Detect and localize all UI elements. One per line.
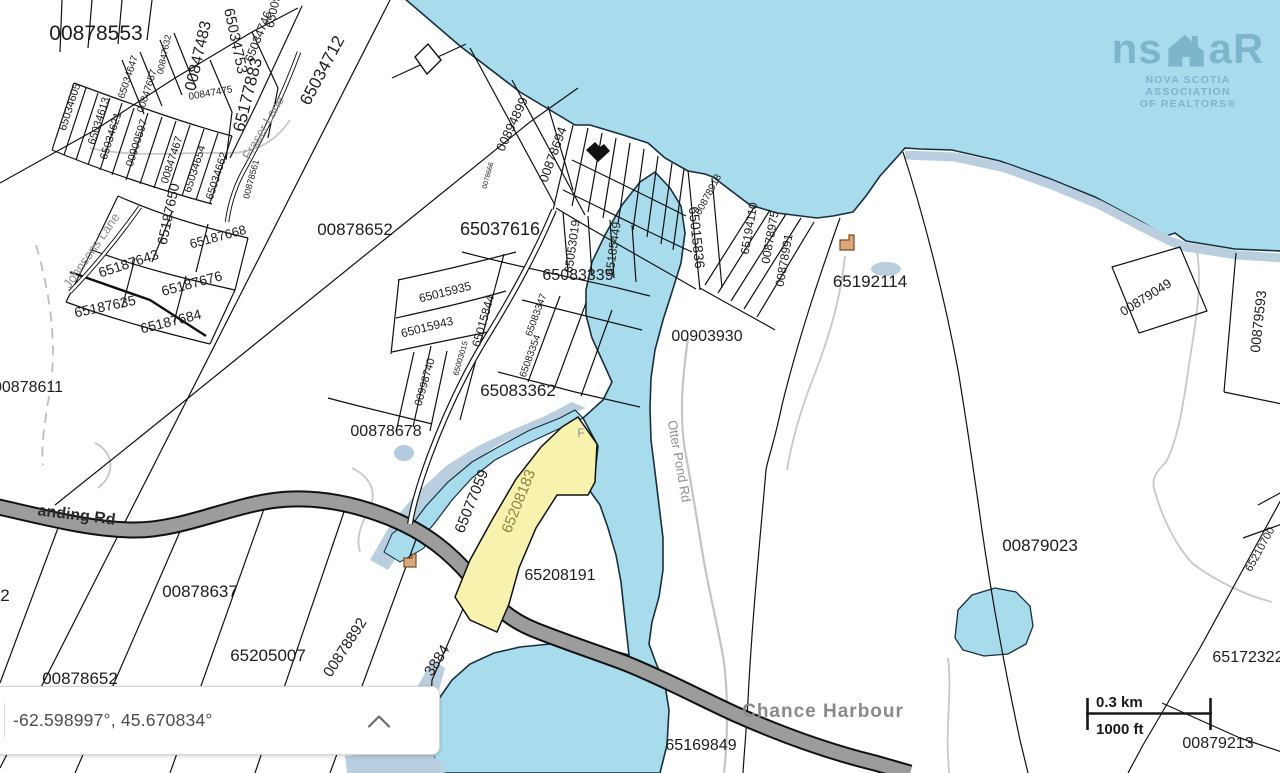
building-icon-tan	[840, 235, 854, 250]
logo-subtitle-line1: NOVA SCOTIA ASSOCIATION	[1108, 74, 1268, 98]
scale-ft-label: 1000 ft	[1096, 721, 1144, 738]
small-parcel-outline	[415, 44, 441, 74]
parcel-label: 00903930	[671, 328, 742, 345]
parcel-label: 00878918	[693, 172, 724, 217]
parcel-label: 00879023	[1002, 536, 1078, 555]
parcel-label: 65015844	[469, 293, 497, 348]
logo-subtitle-line2: OF REALTORS®	[1108, 98, 1268, 110]
parcel-label: 00878678	[350, 423, 421, 440]
scale-km-label: 0.3 km	[1096, 694, 1143, 711]
coordinate-readout: -62.598997°, 45.670834°	[13, 710, 213, 731]
nsar-logo: ns aR NOVA SCOTIA ASSOCIATION OF REALTOR…	[1108, 30, 1268, 110]
parcel-label: 0078666	[482, 161, 496, 189]
map-viewport: 0087855365034712008474836503475365034746…	[0, 0, 1280, 773]
parcel-label: 00878553	[49, 22, 142, 45]
collapse-panel-button[interactable]	[361, 708, 397, 733]
parcel-label: 65194110	[738, 201, 761, 255]
parcel-label: 00998740	[413, 357, 438, 407]
parcel-label: 65037616	[460, 219, 540, 239]
parcel-label: 00879593	[1247, 289, 1269, 353]
nsar-wordmark: ns aR	[1108, 30, 1268, 68]
parcel-label: 65187668	[188, 222, 248, 251]
parcel-label: 65205007	[230, 646, 306, 665]
trail	[36, 245, 53, 465]
parcel-label: 65187676	[160, 267, 225, 299]
parcel-label: 65083362	[480, 381, 556, 400]
parcel-label: 65015836	[686, 206, 708, 270]
parcel-label: 65083347	[524, 292, 550, 338]
parcel-label: 65034662	[204, 151, 231, 201]
parcel-label: 2	[0, 586, 9, 605]
parcel-label: 65208191	[524, 567, 595, 584]
parcel-label: 00878652	[317, 220, 393, 239]
parcel-label: 65210700	[1243, 525, 1277, 574]
building-footprint-icon	[586, 142, 610, 162]
logo-suffix: aR	[1209, 30, 1265, 68]
road-label: Otter Pond Rd	[665, 419, 694, 503]
parcel-label: 65172322	[1212, 649, 1280, 666]
parcel-label: 65083354	[518, 333, 544, 379]
parcel-label: 00879213	[1182, 735, 1253, 752]
trail	[95, 443, 110, 488]
map-canvas[interactable]: 0087855365034712008474836503475365034746…	[0, 0, 1280, 773]
parcel-label: 65015943	[399, 314, 455, 341]
parcel-label: 00847632	[155, 34, 173, 75]
parcel-label: 00879049	[1117, 275, 1174, 318]
chevron-up-icon	[367, 714, 391, 727]
coordinate-panel: -62.598997°, 45.670834°	[0, 686, 440, 755]
scale-bar: 0.3 km 1000 ft	[1086, 694, 1212, 738]
parcel-label: 00894899	[493, 95, 531, 154]
parcel-label: 65034654	[182, 144, 209, 194]
parcel-label: 00847483	[182, 19, 215, 92]
house-icon	[1166, 32, 1206, 68]
parcel-label: 65009	[263, 0, 284, 29]
small-pond	[394, 445, 414, 461]
road-label: F	[577, 426, 584, 440]
parcel-label: 65187650	[154, 182, 183, 246]
parcel-label: 65169849	[665, 737, 736, 754]
parcel-label: 00878561	[241, 159, 261, 200]
parcel-label: 3884	[421, 642, 453, 679]
parcel-label: 65083339	[542, 267, 613, 284]
place-label: Chance Harbour	[742, 701, 904, 722]
parcel-label: 65034647	[117, 54, 141, 100]
parcel-label: 00878892	[320, 615, 371, 680]
parcel-label: 65187635	[73, 292, 137, 321]
parcel-label: 65192114	[833, 272, 907, 291]
parcel-label: 00878637	[162, 582, 238, 601]
pond-right-of-road	[955, 588, 1033, 656]
trail	[948, 658, 950, 773]
parcel-label: 65187684	[139, 306, 204, 337]
logo-prefix: ns	[1112, 30, 1163, 68]
parcel-label: 00878611	[0, 379, 63, 396]
